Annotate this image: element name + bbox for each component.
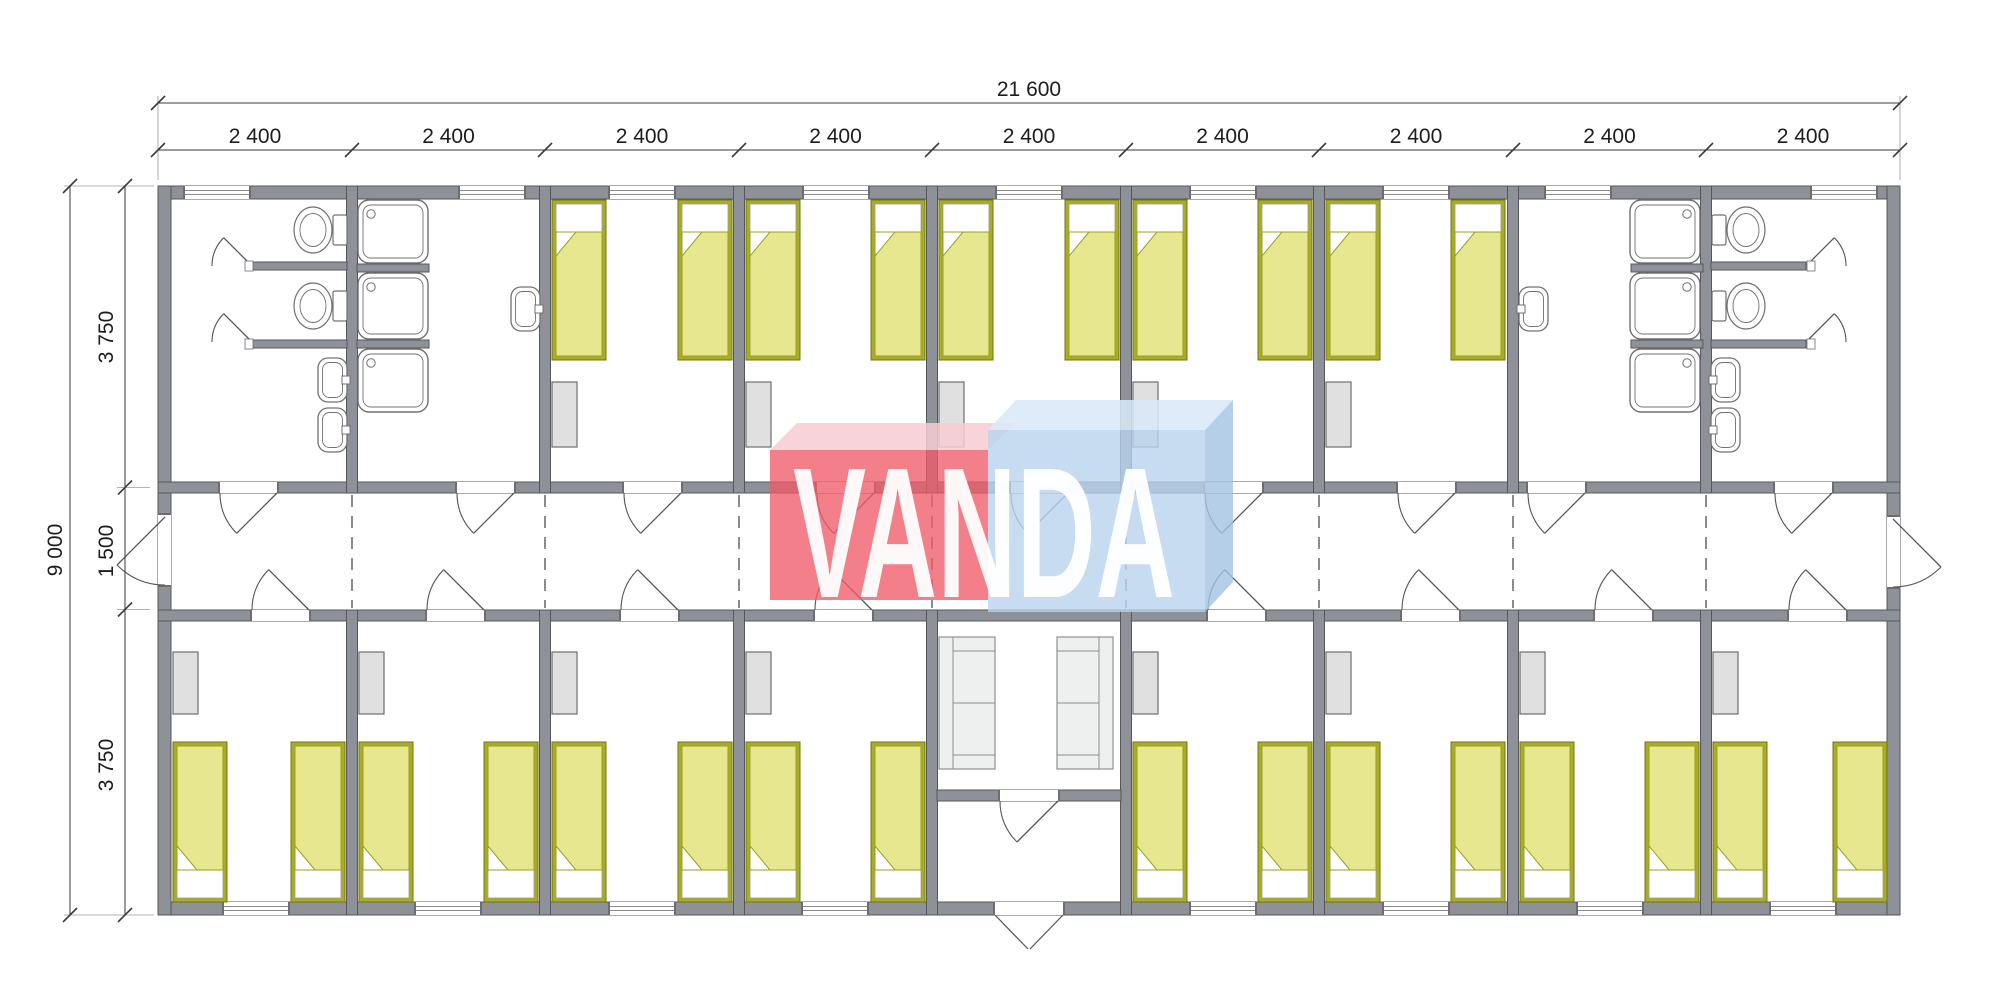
wardrobe: [173, 652, 198, 714]
bed: [1258, 742, 1312, 902]
bed: [552, 742, 606, 902]
floor-plan: VANDA21 6002 4002 4002 4002 4002 4002 40…: [0, 0, 2000, 999]
bed: [291, 742, 345, 902]
shower-tray: [1630, 349, 1700, 412]
dimension-label: 2 400: [422, 125, 475, 148]
wardrobe: [1133, 652, 1158, 714]
dimension-label: 3 750: [95, 739, 118, 792]
washbasin: [318, 408, 350, 452]
wardrobe: [1713, 652, 1738, 714]
bed: [552, 200, 606, 360]
washbasin: [318, 358, 350, 402]
dimension-label: 2 400: [1003, 125, 1056, 148]
shower-tray: [1630, 200, 1700, 263]
dimension-label: 21 600: [997, 78, 1061, 101]
wardrobe: [552, 382, 577, 447]
bed: [1133, 742, 1187, 902]
wardrobe: [1326, 382, 1351, 447]
bed: [746, 742, 800, 902]
shower-tray: [358, 200, 428, 263]
shower-tray: [358, 273, 428, 339]
sofa: [1057, 637, 1113, 769]
bed: [678, 200, 732, 360]
shower-tray: [358, 349, 428, 412]
watermark-text: VANDA: [793, 430, 1175, 637]
wardrobe: [746, 652, 771, 714]
dimension-label: 2 400: [1390, 125, 1443, 148]
bed: [1833, 742, 1887, 902]
bed: [1451, 742, 1505, 902]
wardrobe: [746, 382, 771, 447]
dimension-label: 2 400: [1583, 125, 1636, 148]
bed: [871, 200, 925, 360]
washbasin: [1709, 358, 1740, 402]
dimension-label: 2 400: [1196, 125, 1249, 148]
washbasin: [1517, 287, 1548, 331]
bed: [484, 742, 538, 902]
watermark-blue-side-face: [1205, 400, 1233, 612]
dimension-label: 2 400: [229, 125, 282, 148]
dimension-label: 3 750: [95, 311, 118, 364]
bed: [1451, 200, 1505, 360]
wardrobe: [1520, 652, 1545, 714]
bed: [1326, 200, 1380, 360]
dimension-label: 2 400: [809, 125, 862, 148]
bed: [939, 200, 993, 360]
wardrobe: [359, 652, 384, 714]
vanda-watermark: VANDA: [770, 400, 1233, 637]
dimension-label: 2 400: [616, 125, 669, 148]
bed: [1326, 742, 1380, 902]
bed: [1520, 742, 1574, 902]
bed: [1065, 200, 1119, 360]
bed: [1713, 742, 1767, 902]
bed: [1258, 200, 1312, 360]
wardrobe: [1326, 652, 1351, 714]
dimension-label: 2 400: [1777, 125, 1830, 148]
bed: [173, 742, 227, 902]
bed: [678, 742, 732, 902]
bed: [871, 742, 925, 902]
washbasin: [511, 287, 543, 331]
floor-plan-canvas: VANDA21 6002 4002 4002 4002 4002 4002 40…: [0, 0, 2000, 999]
bed: [1645, 742, 1699, 902]
shower-tray: [1630, 273, 1700, 339]
sofa: [939, 637, 995, 769]
bed: [746, 200, 800, 360]
bed: [359, 742, 413, 902]
dimension-label: 1 500: [95, 525, 118, 578]
watermark-blue-top-face: [988, 400, 1233, 430]
wardrobe: [552, 652, 577, 714]
dimension-label: 9 000: [44, 524, 67, 577]
washbasin: [1709, 408, 1740, 452]
bed: [1133, 200, 1187, 360]
